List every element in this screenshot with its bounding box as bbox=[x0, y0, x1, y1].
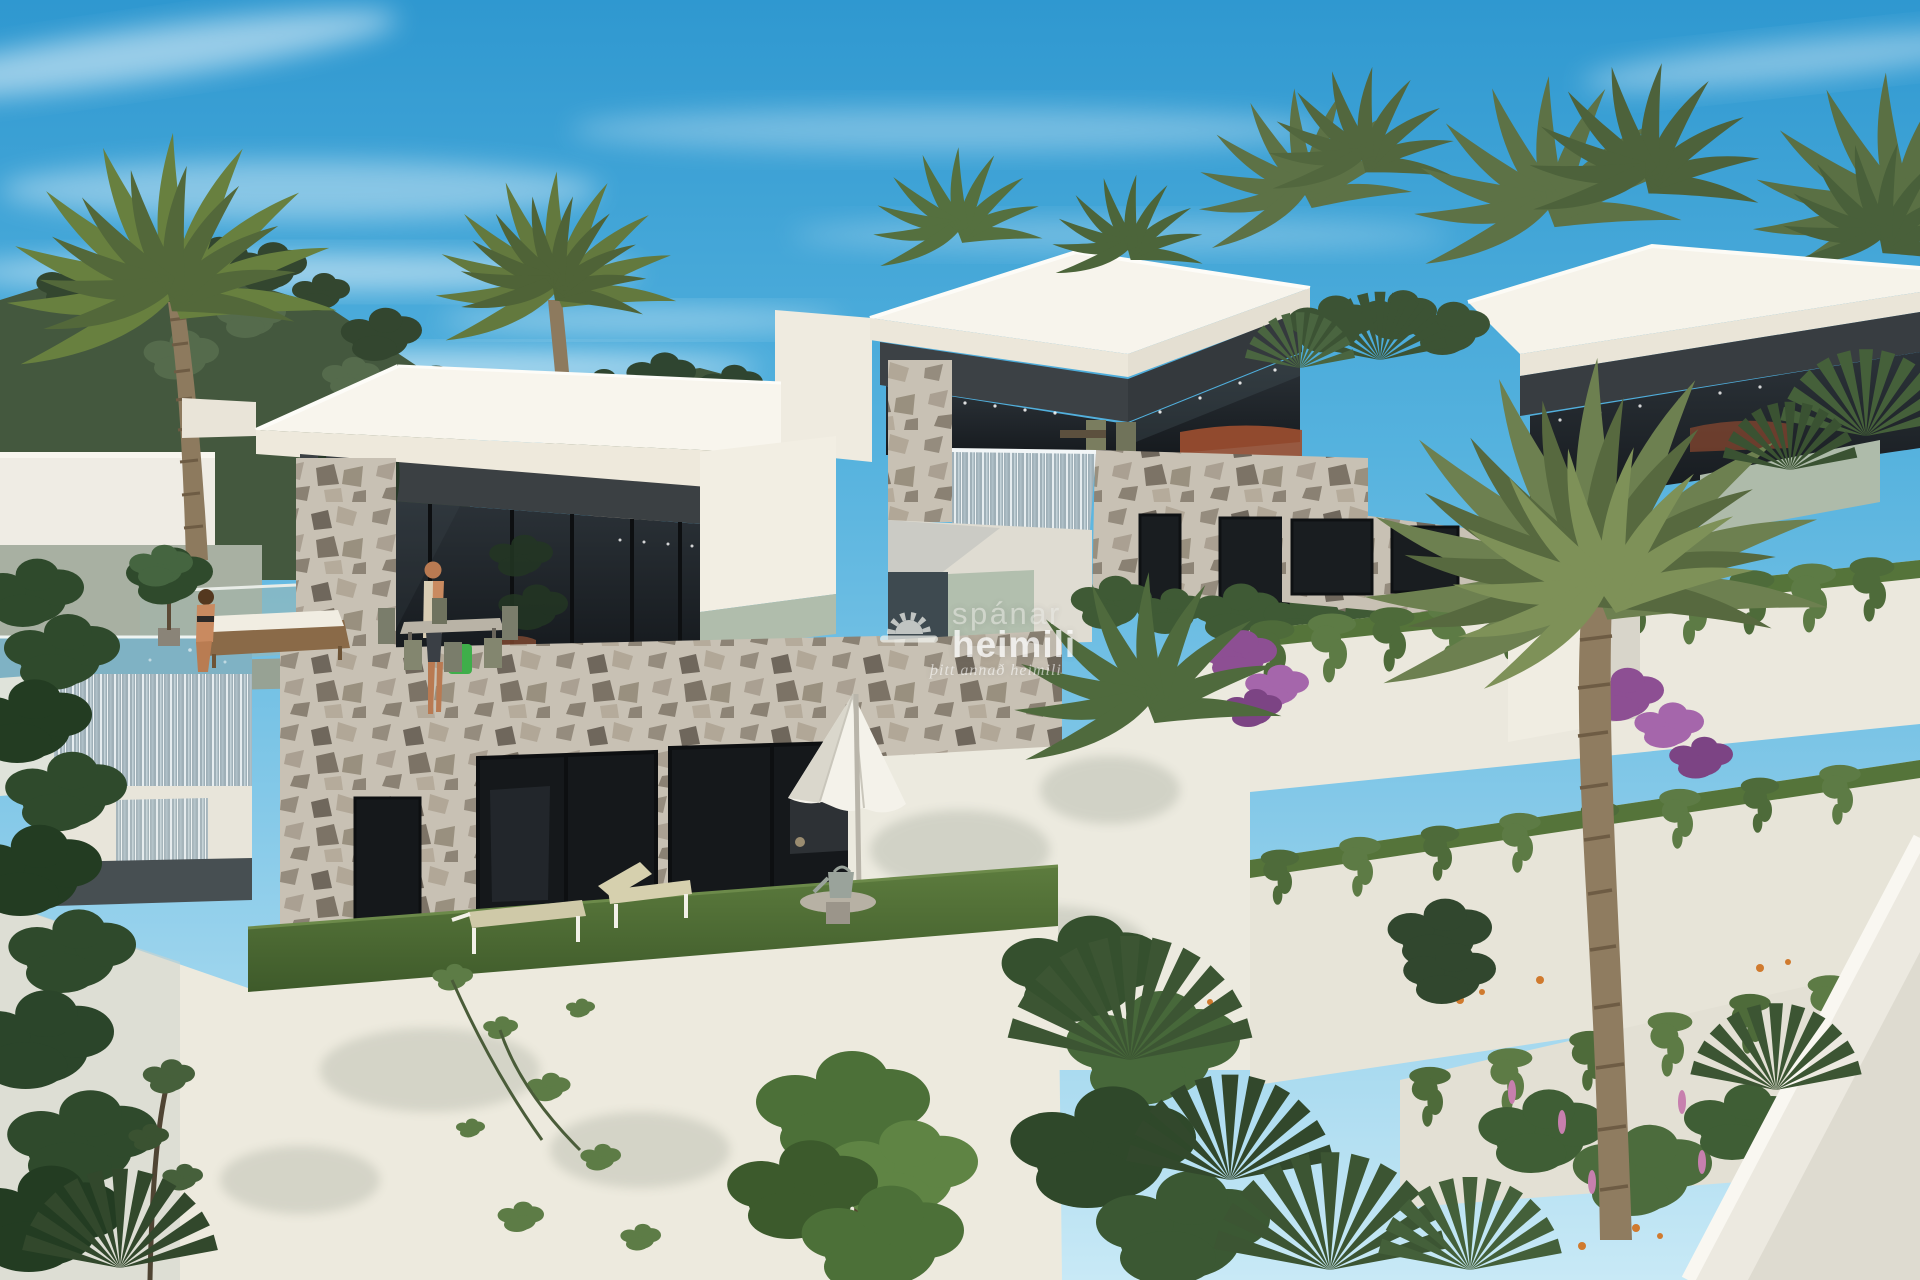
white-wing bbox=[700, 436, 836, 612]
waterfall-feature bbox=[952, 450, 1096, 532]
waterfall-tier-2 bbox=[116, 798, 208, 868]
watermark: spánar heimili þitt annað heimili bbox=[874, 598, 1076, 680]
watermark-brand-bottom: heimili bbox=[952, 626, 1076, 663]
stone-cladding bbox=[888, 360, 952, 522]
architectural-render: spánar heimili þitt annað heimili bbox=[0, 0, 1920, 1280]
watermark-tagline: þitt annað heimili bbox=[930, 662, 1076, 680]
sun-over-horizon-icon bbox=[874, 602, 944, 662]
